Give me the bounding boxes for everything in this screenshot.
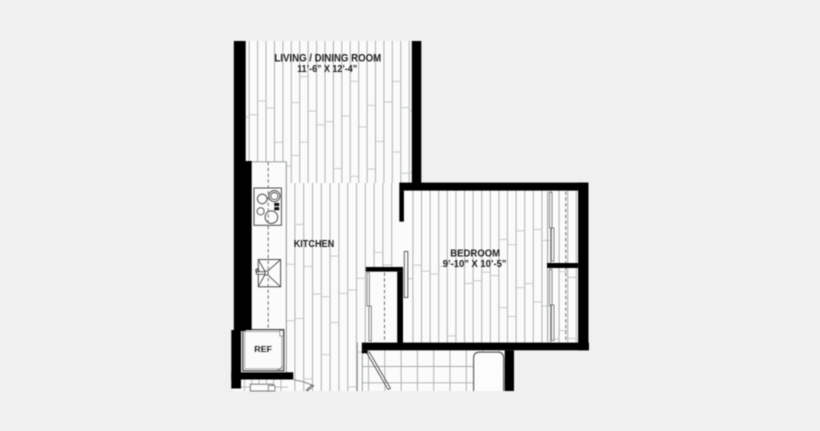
svg-text:REF: REF — [254, 344, 272, 354]
svg-text:LIVING / DINING ROOM: LIVING / DINING ROOM — [274, 53, 381, 65]
svg-text:9’-10” X 10’-5”: 9’-10” X 10’-5” — [443, 259, 507, 270]
svg-text:11’-6” X 12’-4”: 11’-6” X 12’-4” — [297, 64, 357, 75]
svg-text:KITCHEN: KITCHEN — [294, 238, 335, 250]
svg-text:BEDROOM: BEDROOM — [450, 247, 500, 259]
